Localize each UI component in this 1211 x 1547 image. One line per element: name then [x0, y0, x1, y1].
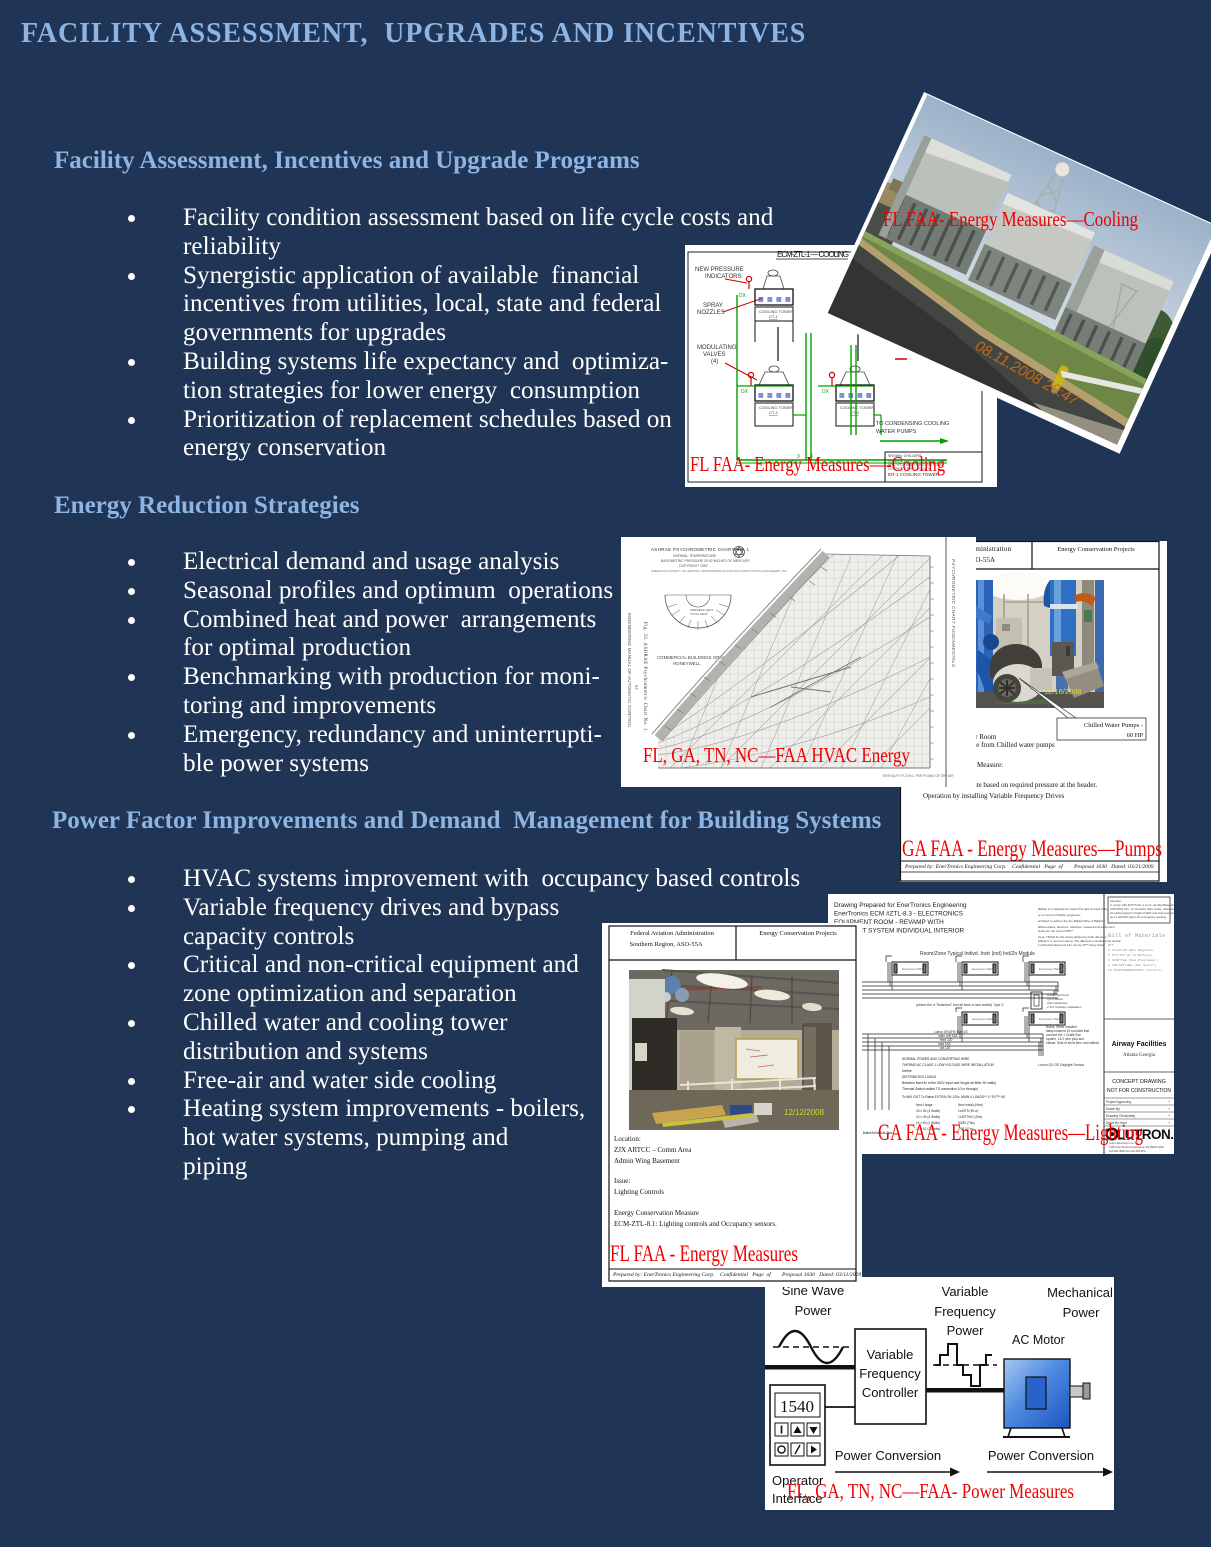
svg-text:Operation by installing Variab: Operation by installing Variable Frequen…: [923, 792, 1064, 800]
svg-text:Mechanical: Mechanical: [1047, 1285, 1113, 1300]
svg-text:NEW PRESSURE: NEW PRESSURE: [695, 267, 744, 273]
svg-text:Atlanta Georgia: Atlanta Georgia: [1123, 1053, 1156, 1058]
svg-text:Prepared by: EnerTronics Engin: Prepared by: EnerTronics Engineering Cor…: [904, 863, 1154, 870]
svg-text:FL, GA, TN, NC—FAA- Power Meas: FL, GA, TN, NC—FAA- Power Measures: [787, 1479, 1074, 1503]
svg-text:(4): (4): [711, 359, 718, 365]
svg-text:COPYRIGHT 1992: COPYRIGHT 1992: [679, 564, 708, 568]
svg-text:Lighting Controls: Lighting Controls: [614, 1188, 664, 1196]
svg-text:architect to add-on the the Ba: architect to add-on the the Ballast Wire…: [1038, 919, 1105, 923]
svg-text:Frequency: Frequency: [934, 1304, 996, 1319]
svg-text:Power: Power: [795, 1303, 833, 1318]
svg-text:DISTRIBUTED LOADS: DISTRIBUTED LOADS: [902, 1075, 937, 1079]
svg-text:INDICATORS: INDICATORS: [705, 274, 741, 280]
svg-text:▩: ▩: [839, 393, 845, 399]
svg-text:1540: 1540: [780, 1397, 814, 1416]
svg-text:To MIX OUT To Raise EXTRA ON 1: To MIX OUT To Raise EXTRA ON 120v. MAIN …: [902, 1095, 1005, 1099]
svg-text:NORMAL TEMPERATURE: NORMAL TEMPERATURE: [673, 554, 717, 558]
svg-text:EnerTronics ECM #ZTL-8.3 - ELE: EnerTronics ECM #ZTL-8.3 - ELECTRONICS: [834, 911, 963, 918]
svg-text:Location:: Location:: [614, 1135, 641, 1143]
svg-text:3 CT+4A+CN (Bus Supplies): 3 CT+4A+CN (Bus Supplies): [1108, 948, 1155, 952]
svg-text:FL, GA, TN, NC—FAA HVAC Energy: FL, GA, TN, NC—FAA HVAC Energy: [643, 743, 910, 767]
svg-text:GA FAA - Energy Measures—Pumps: GA FAA - Energy Measures—Pumps: [902, 836, 1162, 861]
svg-text:TO CONDENSING COOLING: TO CONDENSING COOLING: [876, 421, 949, 427]
svg-text:▩: ▩: [776, 297, 782, 303]
svg-text:Chilled Water Pumps -: Chilled Water Pumps -: [1084, 722, 1143, 729]
svg-text:Flow rate based on required pr: Flow rate based on required pressure at …: [955, 781, 1097, 789]
svg-text:Prepared by: EnerTronics Engin: Prepared by: EnerTronics Engineering Cor…: [612, 1271, 861, 1278]
svg-text:Ecosystem Ballast: Ecosystem Ballast: [972, 967, 997, 971]
svg-text:Fig. 33. ASHRAE Psychrometric: Fig. 33. ASHRAE Psychrometric Chart No. …: [642, 622, 647, 732]
svg-text:MODULATING: MODULATING: [697, 345, 737, 351]
svg-text:New Usage: New Usage: [916, 1103, 933, 1107]
svg-text:Project Approving: Project Approving: [1106, 1100, 1131, 1104]
svg-text:7200 Suter Road Coopersburg, P: 7200 Suter Road Coopersburg, PA 18036-12…: [1109, 1145, 1164, 1149]
svg-text:1x49T5 (59 w): 1x49T5 (59 w): [958, 1109, 978, 1113]
svg-text:60 HP: 60 HP: [1127, 732, 1144, 739]
svg-text:HONEYWELL: HONEYWELL: [673, 661, 701, 666]
svg-text:+: +: [1168, 1107, 1170, 1111]
svg-text:12/16/2008: 12/16/2008: [1044, 687, 1082, 696]
svg-text:Ecosystem Ballast: Ecosystem Ballast: [1039, 967, 1064, 971]
svg-text:2 CHTB*PoE (PoE Programmer): 2 CHTB*PoE (PoE Programmer): [1108, 958, 1158, 962]
svg-text:BAROMETRIC PRESSURE 29.92 INCH: BAROMETRIC PRESSURE 29.92 INCHES OF MERC…: [661, 559, 751, 563]
svg-text:Energy Conservation Measure: Energy Conservation Measure: [614, 1209, 699, 1217]
svg-text:24 x 49 (4 Watts): 24 x 49 (4 Watts): [916, 1115, 940, 1119]
svg-text:Southern Region, ASO-55A: Southern Region, ASO-55A: [629, 941, 702, 948]
svg-text:FL FAA- Energy Measures—-Cooli: FL FAA- Energy Measures—-Cooling: [690, 452, 945, 476]
svg-text:▩: ▩: [758, 393, 764, 399]
svg-text:FL FAA - Energy Measures: FL FAA - Energy Measures: [610, 1241, 798, 1266]
svg-text:Ecosystem Ballast: Ecosystem Ballast: [1039, 1017, 1064, 1021]
svg-text:1,240 photodetectors b/in can: 1,240 photodetectors b/in can do 45** Fe…: [1038, 943, 1105, 947]
svg-text:Admin Wing Basement: Admin Wing Basement: [614, 1157, 680, 1165]
svg-text:AMERICAN SOCIETY OF HEATING, R: AMERICAN SOCIETY OF HEATING, REFRIGERATI…: [651, 569, 788, 573]
svg-text:Federal Aviation Administratio: Federal Aviation Administration: [630, 930, 714, 937]
svg-text:DX: DX: [741, 389, 749, 395]
svg-text:AC Motor: AC Motor: [1012, 1333, 1065, 1347]
svg-text:Variable: Variable: [867, 1347, 914, 1362]
svg-text:NOT FOR CONSTRUCTION: NOT FOR CONSTRUCTION: [1107, 1088, 1171, 1094]
svg-text:▩: ▩: [857, 393, 863, 399]
svg-text:Airway Facilities: Airway Facilities: [1112, 1041, 1167, 1048]
svg-text:▩: ▩: [785, 393, 791, 399]
svg-text:ballast. Seal of short term an: ballast. Seal of short term and utilized: [1046, 1041, 1099, 1045]
svg-text:Noise from Chilled water pumps: Noise from Chilled water pumps: [963, 741, 1055, 749]
svg-text:Issue:: Issue:: [614, 1177, 630, 1185]
svg-text:SPRAY: SPRAY: [703, 303, 723, 309]
svg-text:ENGINEERING MANUAL OF AUTOMATI: ENGINEERING MANUAL OF AUTOMATIC CONTROL: [627, 613, 632, 728]
svg-text:610.282.3800 Fax 610.282.3Pro: 610.282.3800 Fax 610.282.3Pro: [1109, 1149, 1147, 1153]
svg-text:Power: Power: [947, 1323, 985, 1338]
svg-text:THERMO AC CLASS 1 LOW VOLTAGE: THERMO AC CLASS 1 LOW VOLTAGE WIRE INSTA…: [902, 1063, 995, 1067]
svg-text:ty to control of facility engi: ty to control of facility engineers;: [1038, 913, 1081, 917]
svg-text:Power: Power: [1063, 1305, 1101, 1320]
svg-text:Thermal Switch walled TS conne: Thermal Switch walled TS connection 10 i…: [902, 1087, 978, 1091]
svg-text:54: 54: [634, 685, 639, 690]
svg-text:ckt 120: ckt 120: [940, 1046, 951, 1050]
svg-text:Energy Conservation Projects: Energy Conservation Projects: [759, 930, 837, 937]
svg-text:26 x 59 (4 Watts): 26 x 59 (4 Watts): [916, 1109, 940, 1113]
svg-text:▩: ▩: [776, 393, 782, 399]
svg-text:Ecosystem Ballast: Ecosystem Ballast: [902, 967, 927, 971]
svg-text:2 CCT*4PL*+W (4 Buttons): 2 CCT*4PL*+W (4 Buttons): [1108, 953, 1153, 957]
svg-text:QTY: QTY: [1108, 943, 1114, 947]
svg-text:12/12/2008: 12/12/2008: [784, 1108, 825, 1117]
svg-text:Power Conversion: Power Conversion: [835, 1448, 941, 1463]
svg-text:Ecosystem Ballast: Ecosystem Ballast: [972, 1017, 997, 1021]
svg-text:Drawing Prepared for EnerTroni: Drawing Prepared for EnerTronics Enginee…: [834, 902, 967, 909]
svg-text:▩: ▩: [767, 393, 773, 399]
svg-text:Energy Conservation Projects: Energy Conservation Projects: [1057, 546, 1135, 553]
svg-text:TOTAL HEAT: TOTAL HEAT: [690, 612, 708, 616]
svg-text:ECM-ZTL-8.1: Lighting controls: ECM-ZTL-8.1: Lighting controls and Occup…: [614, 1220, 777, 1228]
svg-text:Controller: Controller: [862, 1385, 919, 1400]
svg-text:ECM-ZTL-1 — COOLING: ECM-ZTL-1 — COOLING: [777, 250, 849, 259]
svg-text:+: +: [1168, 1100, 1170, 1104]
svg-text:NT SYSTEM INDIVIDUAL INTERIOR: NT SYSTEM INDIVIDUAL INTERIOR: [858, 928, 965, 935]
svg-text:NOZZLES: NOZZLES: [697, 310, 725, 316]
svg-text:Frequency: Frequency: [859, 1366, 921, 1381]
svg-text:Room/Zone Typical Indivd. Invt: Room/Zone Typical Indivd. Invtr (ind) In…: [920, 951, 1035, 957]
svg-text:WATER PUMPS: WATER PUMPS: [876, 429, 917, 435]
svg-text:Variable: Variable: [942, 1284, 989, 1299]
svg-text:▩: ▩: [785, 297, 791, 303]
svg-text:Power Conversion: Power Conversion: [988, 1448, 1094, 1463]
svg-text:CT-1: CT-1: [769, 314, 778, 319]
svg-text:DX: DX: [822, 389, 830, 395]
svg-text:▩: ▩: [767, 297, 773, 303]
svg-text:CT-2: CT-2: [769, 410, 778, 415]
svg-text:+: +: [1168, 1121, 1170, 1125]
svg-text:CONCEPT DRAWING: CONCEPT DRAWING: [1112, 1079, 1166, 1085]
svg-text:2 3/4” backbox wallstation: 2 3/4” backbox wallstation: [1047, 1005, 1082, 1009]
svg-text:Between fixed fix of the 600V: Between fixed fix of the 600V Input and …: [902, 1081, 996, 1085]
svg-text:DX: DX: [739, 293, 747, 299]
svg-text:▩: ▩: [758, 297, 764, 303]
svg-text:Notes for the Lutron P55**: Notes for the Lutron P55**: [1038, 929, 1074, 933]
svg-text:Ballast to a Network for selec: Ballast to a Network for select this add…: [1038, 907, 1108, 911]
svg-text:Drawn By: Drawn By: [1106, 1107, 1120, 1111]
svg-text:4 LED*CET*000 (Occ Sensor): 4 LED*CET*000 (Occ Sensor): [1108, 963, 1156, 967]
svg-text:ZJX ARTCC – Comm Area: ZJX ARTCC – Comm Area: [614, 1146, 692, 1154]
svg-text:New Install (New): New Install (New): [958, 1103, 983, 1107]
svg-text:NORMAL POWER AND CONVERTING WI: NORMAL POWER AND CONVERTING WIRE: [902, 1057, 970, 1061]
svg-text:(where the a "Switched" end al: (where the a "Switched" end all lines a …: [916, 1003, 1003, 1007]
svg-text:and 4 HOURS QLym-On emergency: and 4 HOURS QLym-On emergency needing: [1110, 915, 1166, 919]
svg-text:GA FAA - Energy Measures—Light: GA FAA - Energy Measures—Lighting: [878, 1120, 1143, 1145]
svg-text:Drawally Checkdatty: Drawally Checkdatty: [1106, 1114, 1135, 1118]
svg-text:Define:: Define:: [902, 1069, 913, 1073]
svg-text:VALVES: VALVES: [703, 352, 725, 358]
svg-text:FL FAA- Energy Measures—Coolin: FL FAA- Energy Measures—Cooling: [883, 207, 1138, 231]
svg-text:+: +: [1168, 1114, 1170, 1118]
svg-text:Bill of Materials: Bill of Materials: [1108, 932, 1165, 939]
svg-text:▩: ▩: [866, 393, 872, 399]
svg-text:PSYCHROMETRIC CHART FUNDAMENTA: PSYCHROMETRIC CHART FUNDAMENTALS: [951, 559, 956, 668]
svg-text:70 PX2PX0000HES2PV0 (Fixture): 70 PX2PX0000HES2PV0 (Fixture): [1108, 968, 1162, 972]
svg-text:1x39T5HO (49w): 1x39T5HO (49w): [958, 1115, 982, 1119]
svg-text:ENTHALPY FT.3 W.G. PER POUND: ENTHALPY FT.3 W.G. PER POUND OF DRY AIR: [883, 774, 954, 778]
svg-text:Measure:: Measure:: [977, 761, 1003, 769]
svg-text:Lutron QS GE Daylight Sensor: Lutron QS GE Daylight Sensor: [1038, 1063, 1085, 1067]
